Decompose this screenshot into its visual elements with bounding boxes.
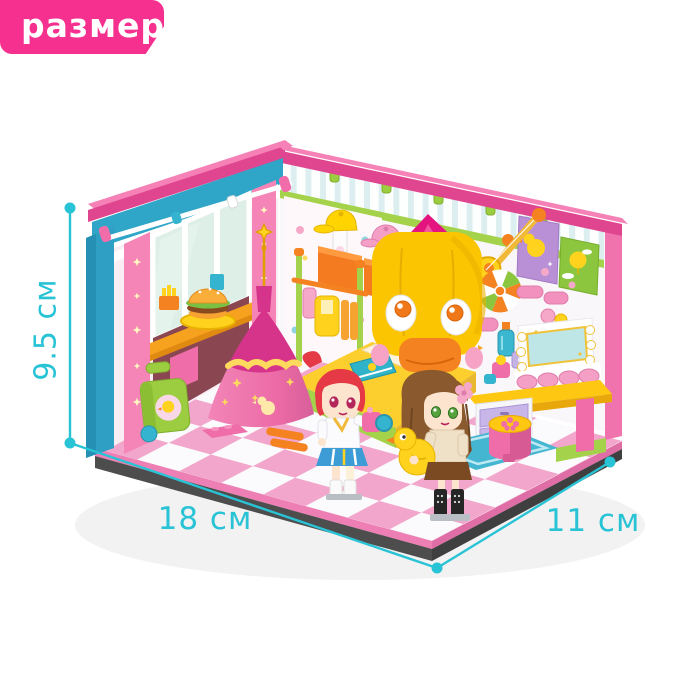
duck-headboard [371, 214, 483, 372]
duck-bill [399, 338, 461, 372]
duck-cheek [371, 344, 389, 366]
wall-picture-duck [517, 216, 559, 284]
wall-picture-balloon [559, 237, 599, 295]
fries [159, 285, 179, 310]
duck-cheek [465, 347, 483, 369]
depth-dimension-label: 11 см [518, 503, 668, 539]
height-dimension-label: 9.5 см [29, 255, 64, 405]
cup [210, 274, 224, 290]
small-teal-bottle [484, 374, 496, 384]
size-badge: размер [0, 0, 164, 54]
stool [489, 416, 531, 463]
right-wall-edge [605, 228, 622, 440]
toy-room-illustration [0, 0, 700, 700]
size-badge-label: размер [0, 0, 164, 52]
width-dimension-label: 18 см [130, 501, 280, 537]
product-photo: размер 9.5 см 18 см 11 см [0, 0, 700, 700]
